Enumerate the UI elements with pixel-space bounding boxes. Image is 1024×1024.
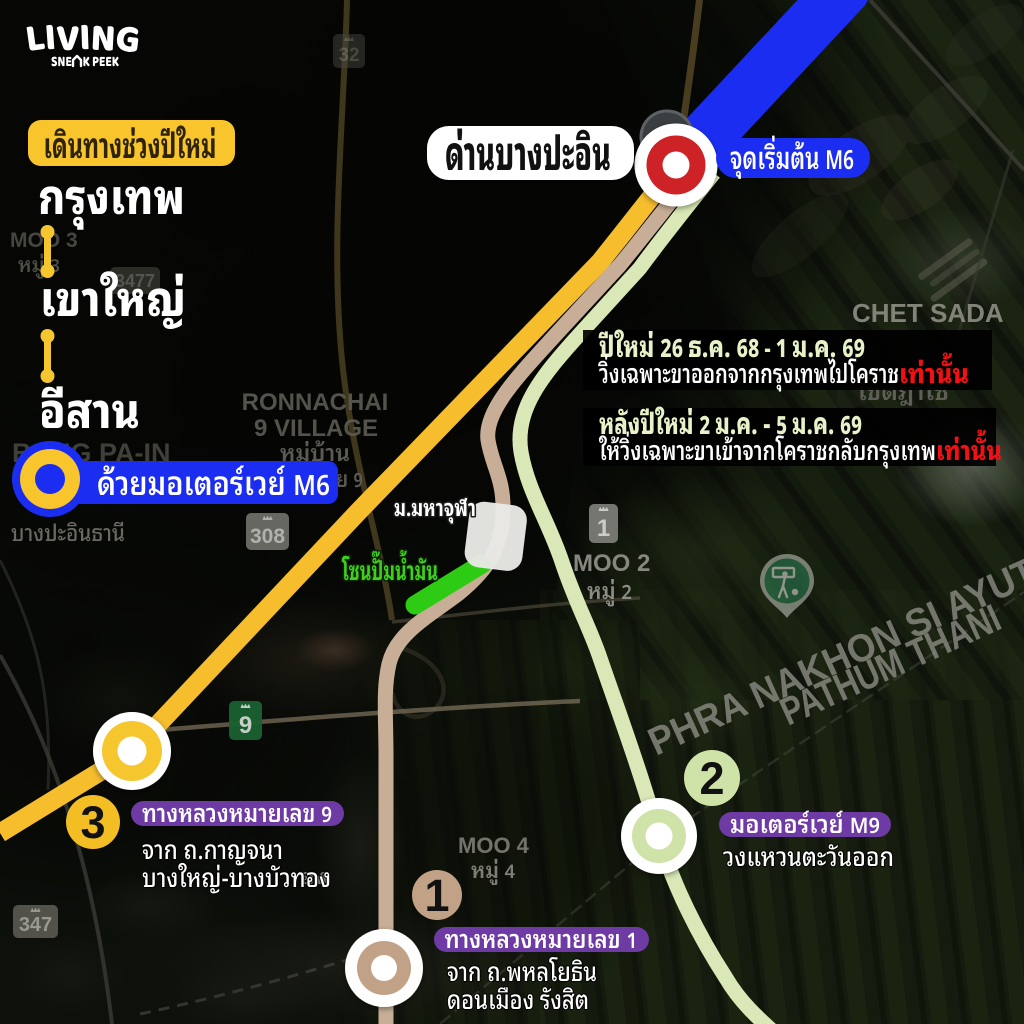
svg-text:347: 347 bbox=[19, 914, 52, 936]
svg-text:3: 3 bbox=[80, 797, 105, 848]
svg-text:MOO 2: MOO 2 bbox=[573, 550, 650, 577]
svg-text:MOO 4: MOO 4 bbox=[458, 833, 530, 858]
svg-text:RONNACHAI: RONNACHAI bbox=[242, 389, 389, 416]
svg-text:CHET SADA: CHET SADA bbox=[852, 298, 1004, 328]
svg-text:1: 1 bbox=[597, 515, 610, 542]
svg-text:2: 2 bbox=[699, 753, 724, 804]
svg-text:32: 32 bbox=[338, 45, 359, 66]
svg-text:3477: 3477 bbox=[115, 271, 155, 291]
svg-text:9 VILLAGE: 9 VILLAGE bbox=[254, 415, 378, 442]
svg-text:9: 9 bbox=[239, 712, 252, 739]
svg-text:308: 308 bbox=[250, 525, 285, 548]
svg-text:1: 1 bbox=[424, 870, 449, 921]
